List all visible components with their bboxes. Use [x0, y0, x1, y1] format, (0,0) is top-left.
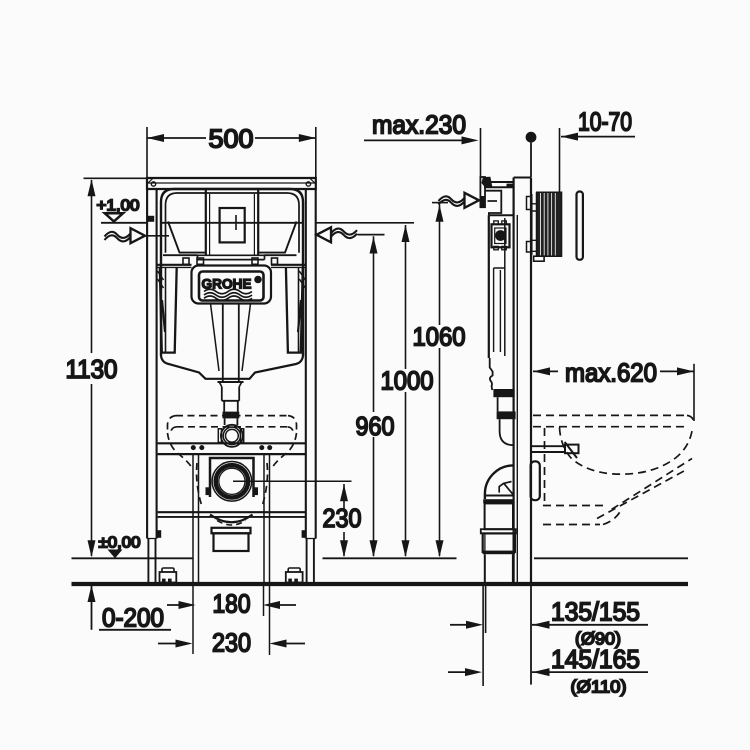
- svg-text:0-200: 0-200: [102, 603, 164, 633]
- svg-text:10-70: 10-70: [578, 107, 632, 137]
- svg-text:(Ø110): (Ø110): [571, 677, 627, 697]
- svg-text:230: 230: [212, 628, 251, 658]
- svg-text:960: 960: [356, 411, 395, 441]
- svg-text:135/155: 135/155: [551, 597, 640, 627]
- svg-text:500: 500: [209, 124, 254, 154]
- svg-text:1130: 1130: [66, 354, 118, 384]
- svg-text:max.230: max.230: [372, 110, 466, 140]
- svg-text:230: 230: [323, 503, 362, 533]
- svg-text:145/165: 145/165: [551, 644, 640, 674]
- svg-text:1060: 1060: [413, 322, 466, 352]
- svg-text:180: 180: [213, 589, 251, 619]
- svg-text:±0,00: ±0,00: [99, 535, 141, 552]
- svg-text:+1,00: +1,00: [97, 198, 140, 215]
- svg-text:max.620: max.620: [565, 358, 657, 388]
- svg-text:1000: 1000: [381, 366, 434, 396]
